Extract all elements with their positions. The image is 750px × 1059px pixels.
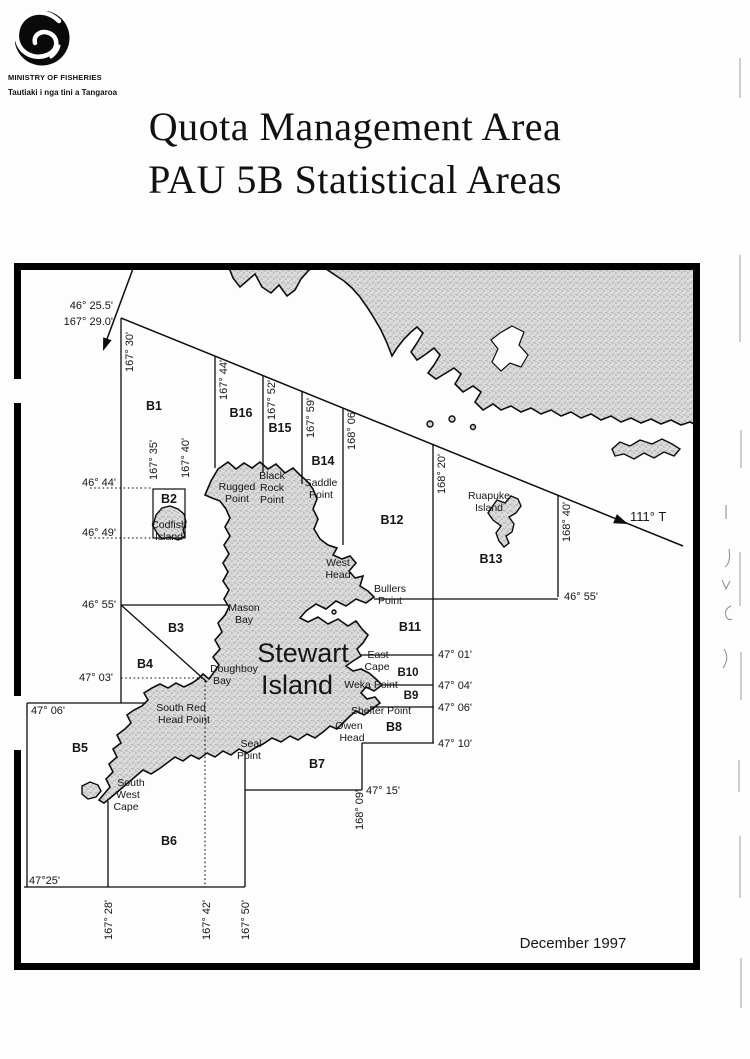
coordinate-label: 167° 35': [148, 440, 160, 480]
place-name-label: Mason: [228, 602, 260, 614]
place-name-label: Weka Point: [344, 679, 398, 691]
area-code-label: B14: [312, 454, 335, 468]
coordinate-label: 47° 01': [438, 649, 472, 661]
place-name-label: Bullers: [374, 583, 406, 595]
coordinate-label: 46° 49': [82, 527, 116, 539]
coordinate-label: 47° 15': [366, 785, 400, 797]
place-name-label: Black: [259, 470, 285, 482]
place-name-label: West: [116, 789, 140, 801]
area-code-label: B9: [404, 690, 419, 702]
coordinate-label: 168° 20': [436, 454, 448, 494]
area-code-label: B2: [161, 492, 177, 506]
coordinate-label: 167° 50': [240, 900, 252, 940]
place-name-label: Point: [378, 595, 402, 607]
place-name-label: Point: [237, 750, 261, 762]
place-name-label: Rock: [260, 482, 285, 494]
statistical-areas-map: 46° 25.5'167° 29.0'167° 30'167° 44'167° …: [0, 0, 750, 1059]
coordinate-label: 47° 03': [79, 672, 113, 684]
area-code-label: B10: [397, 667, 418, 679]
area-code-label: B8: [386, 720, 402, 734]
area-code-label: B16: [230, 406, 253, 420]
islet: [471, 425, 476, 430]
place-name-label: Codfish: [151, 519, 187, 531]
area-code-label: B6: [161, 834, 177, 848]
place-name-label: Cape: [113, 801, 138, 813]
coordinate-label: 167° 30': [124, 332, 136, 372]
place-name-label: Point: [309, 489, 333, 501]
coordinate-label: 168° 09': [354, 790, 366, 830]
place-name-label: Head Point: [158, 714, 210, 726]
place-name-label: Saddle: [305, 477, 338, 489]
place-name-label: Head: [325, 569, 350, 581]
origin-arrowhead-icon: [103, 337, 112, 351]
place-name-label: Ruapuke: [468, 490, 510, 502]
place-name-label: West: [326, 557, 350, 569]
mainland-coastline: [228, 265, 696, 459]
coordinate-label: 47° 06': [438, 702, 472, 714]
place-name-label: South: [117, 777, 145, 789]
coordinate-label: 167° 42': [201, 900, 213, 940]
coordinate-label: 47°25': [29, 875, 60, 887]
area-code-label: B12: [381, 513, 404, 527]
coordinate-label: 46° 25.5': [70, 300, 113, 312]
offshore-island: [612, 439, 680, 459]
margin-scribble: [722, 580, 730, 589]
place-name-label: Bay: [213, 675, 232, 687]
margin-scribble: [725, 549, 730, 567]
map-annotation-label: Island: [261, 670, 333, 700]
area-code-label: B13: [480, 552, 503, 566]
area-code-label: B1: [146, 399, 162, 413]
coordinate-label: 168° 40': [561, 502, 573, 542]
southwest-islet: [82, 782, 101, 799]
place-name-label: Head: [339, 732, 364, 744]
place-name-label: East: [367, 649, 388, 661]
area-code-label: B7: [309, 757, 325, 771]
scan-artifacts: [722, 58, 741, 1008]
map-annotation-label: December 1997: [520, 935, 627, 952]
islet: [449, 416, 455, 422]
coordinate-label: 167° 29.0': [64, 316, 113, 328]
coordinate-label: 47° 06': [31, 705, 65, 717]
place-name-label: Seal: [240, 738, 261, 750]
area-code-label: B3: [168, 621, 184, 635]
bearing-arrowhead-icon: [613, 514, 628, 524]
place-name-label: Owen: [335, 720, 363, 732]
place-name-label: Point: [225, 493, 249, 505]
coordinate-label: 167° 59': [305, 398, 317, 438]
place-name-label: Point: [260, 494, 284, 506]
map-annotation-label: Stewart: [257, 638, 349, 668]
place-name-label: Bay: [235, 614, 254, 626]
margin-scribble: [723, 649, 727, 668]
coordinate-label: 47° 10': [438, 738, 472, 750]
place-name-label: Shelter Point: [351, 705, 411, 717]
place-name-label: Island: [155, 531, 183, 543]
coordinate-label: 167° 40': [180, 438, 192, 478]
coordinate-label: 167° 28': [103, 900, 115, 940]
area-code-label: B15: [269, 421, 292, 435]
coordinate-label: 46° 55': [564, 591, 598, 603]
place-name-label: Rugged: [219, 481, 256, 493]
area-code-label: B11: [399, 620, 421, 634]
area-code-label: B4: [137, 657, 153, 671]
area-code-label: B5: [72, 741, 88, 755]
map-annotation-label: 111° T: [630, 509, 666, 524]
place-name-label: Cape: [364, 661, 389, 673]
coordinate-label: 167° 52': [266, 380, 278, 420]
coordinate-label: 46° 44': [82, 477, 116, 489]
place-name-label: Island: [475, 502, 503, 514]
document-page: MINISTRY OF FISHERIES Tautiaki i nga tin…: [0, 0, 750, 1059]
islet: [427, 421, 433, 427]
inlet-islet: [332, 610, 336, 614]
place-name-label: Doughboy: [210, 663, 259, 675]
margin-scribble: [726, 606, 732, 620]
coordinate-label: 168° 06': [346, 410, 358, 450]
coordinate-label: 47° 04': [438, 680, 472, 692]
coordinate-label: 46° 55': [82, 599, 116, 611]
place-name-label: South Red: [156, 702, 206, 714]
coordinate-label: 167° 44': [218, 360, 230, 400]
